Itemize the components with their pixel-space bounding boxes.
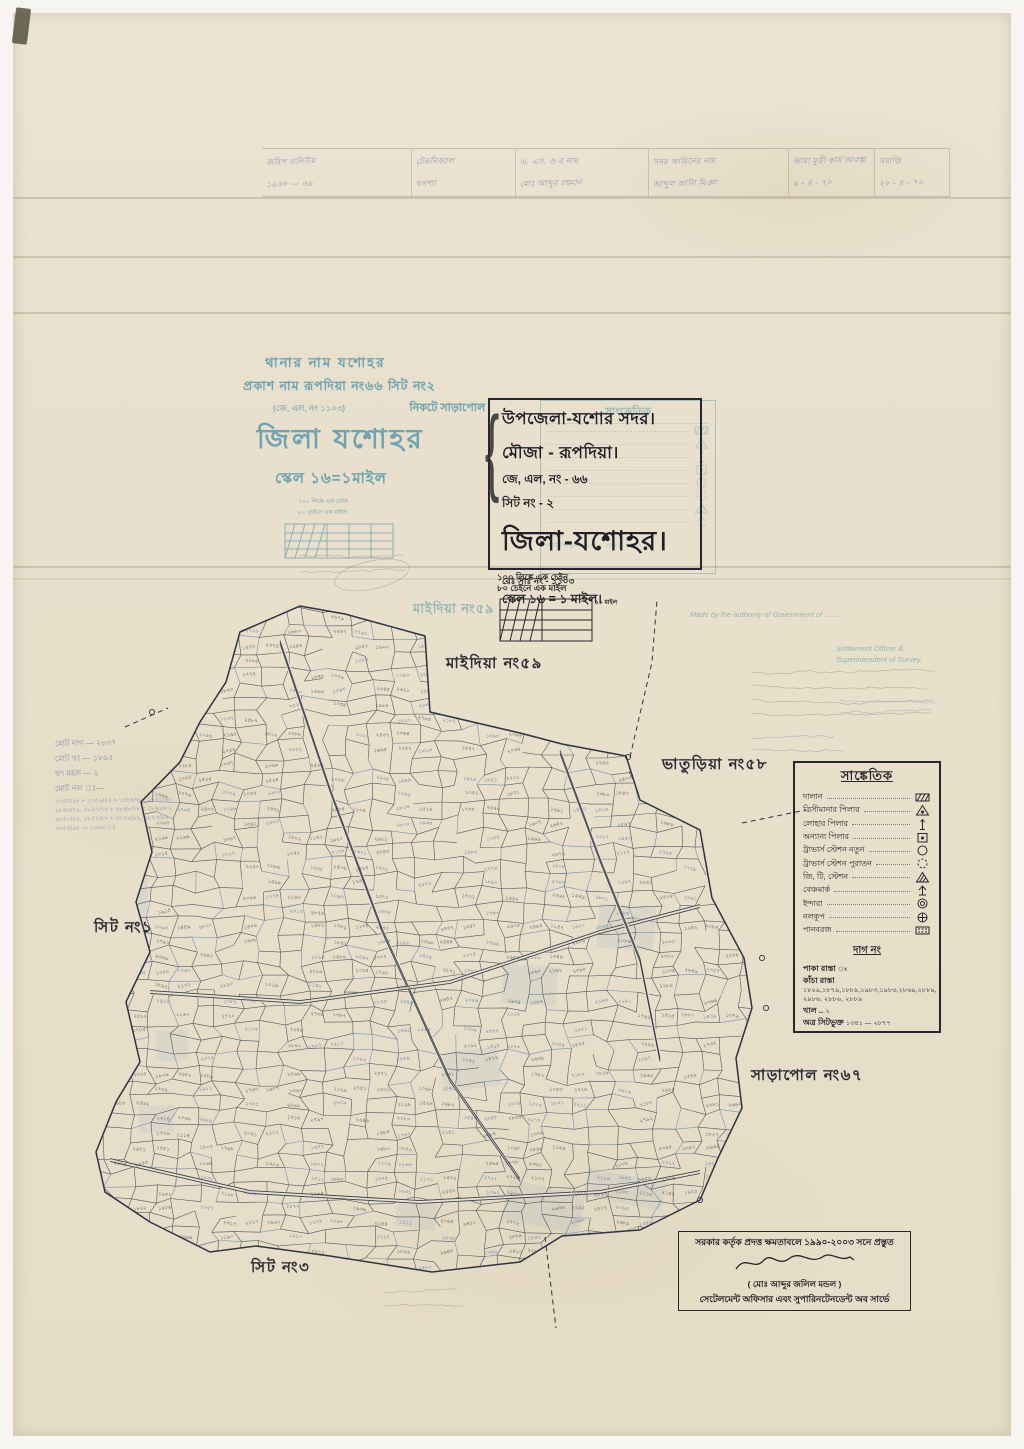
margin-note-line: মোট খং — ১৮৯৫ (55, 751, 185, 766)
legend-item-label: দালান (803, 791, 823, 804)
stamp-mouza-line: প্রকাশ নাম রূপদিয়া নং৬৬ সিট নং২ (243, 378, 543, 398)
header-table-col-0: জরিপ ভলিউম১৯৬৮ — ৬৯ (262, 149, 412, 196)
legend-item-label: লোহার পিলার (803, 818, 848, 831)
legend-dotted-leader (864, 810, 910, 812)
mouza-line: মৌজা - রূপদিয়া। (502, 440, 696, 467)
legend-item-triangle-dot: ত্রিসীমানার পিলার (803, 804, 931, 817)
header-table-entry: সমাপ্তি (879, 154, 945, 169)
legend-item-label: অন্যান্য পিলার (803, 831, 849, 844)
plot-row-1: কাঁচা রাস্তা ১৮০৯,১৮৭৯,১৮৮৯,১৯৮৩,১৯৮৬,২৮… (803, 976, 931, 1004)
legend-dotted-leader (827, 903, 910, 905)
settlement-officer-stamp: Settlement Officer & (836, 644, 903, 653)
legend-item-circle: ট্রাভার্স স্টেশন নতুন (803, 844, 931, 857)
legend-title: সাঙ্কেতিক (803, 767, 931, 788)
legend-item-label: পানবরজ (803, 924, 832, 937)
header-table-col-5: সমাপ্তি২৮ - ৪ - ৭০ (875, 149, 950, 196)
header-table-entry: সদর আমিনের নাম (653, 154, 785, 170)
legend-item-building: দালান (803, 791, 931, 804)
authority-line: সরকার কর্তৃক প্রদত্ত ক্ষমতাবলে ১৯৯০-২০০৩… (684, 1235, 905, 1250)
legend-dotted-leader (876, 863, 910, 865)
made-by-authority-stamp: Made by the authority of Government of .… (690, 610, 841, 619)
diagonal-scale-bar (497, 596, 597, 644)
margin-note-line: মোট নল ঃ— (55, 781, 185, 796)
header-table-col-3: সদর আমিনের নামআব্দুল আলি মিঞা (649, 149, 789, 196)
plot-row-value: ঃ (838, 966, 847, 973)
chain-note-1: ১০০ লিঙ্কে এক চেইন (497, 572, 597, 583)
legend-dotted-leader (852, 823, 910, 825)
plot-number-header: দাগ নং (803, 943, 931, 960)
stamp-chain-note-2: ৮০ চেইনে এক মাইল (298, 510, 347, 516)
plot-row-label: খাল .. (803, 1006, 825, 1015)
legend-item-label: ট্রাভার্স স্টেশন নতুন (803, 844, 865, 857)
legend-dotted-leader (836, 930, 910, 932)
plot-row-value: ২ (825, 1008, 829, 1015)
header-table-entry: ঘনশ্যা (416, 176, 512, 191)
title-brace: { (485, 408, 499, 494)
margin-note-line: হুদ মহল — ২ (55, 766, 185, 781)
legend-item-label: ট্রাভার্স স্টেশন পুরাতন (803, 858, 872, 871)
scale-bar-mile-label: ১০ মাইল (595, 597, 617, 608)
header-table-col-1: টেকনিক্যালঘনশ্যা (412, 149, 517, 196)
legend-dotted-leader (827, 797, 910, 799)
fold-line (13, 312, 1011, 314)
legend-item-square-dot: অন্যান্য পিলার (803, 831, 931, 844)
chain-scale-note: ১০০ লিঙ্কে এক চেইন ৮০ চেইনে এক মাইল (497, 572, 597, 649)
plot-row-label: অত্র সিটভুক্ত (803, 1018, 846, 1027)
officer-name: ( মোঃ আব্দুর জলিল মন্ডল ) (684, 1278, 905, 1292)
legend-item-label: বেঞ্চমার্ক (803, 884, 830, 897)
legend-item-label: ত্রিসীমানার পিলার (803, 804, 860, 817)
stamp-scale-bar (283, 520, 401, 562)
plot-row-label: পাকা রাস্তা (803, 964, 838, 973)
map-sheet-page (13, 13, 1011, 1436)
map-area-label: মাইদিয়া নং৫৯ (413, 600, 495, 621)
map-area-label: সিট নং৩ (251, 1256, 310, 1281)
fold-line (13, 197, 1011, 199)
legend-item-iron-pillar: লোহার পিলার (803, 818, 931, 831)
legend-item-double-circle: ইন্দারা (803, 897, 931, 910)
legend-item-benchmark: বেঞ্চমার্ক (803, 884, 931, 897)
scanned-map-sheet: ১১৭২২২২৬১২৪০১১২৮২৭৯২১৫৫৪১০৯৮২২৯৩১৮৮১১৫১০… (0, 0, 1024, 1449)
map-area-label: সাড়াপোল নং৬৭ (751, 1064, 863, 1089)
legend-item-hatched-triangle: জি, টি, স্টেশন (803, 871, 931, 884)
plot-row-value: ১৮০৯,১৮৭৯,১৮৮৯,১৯৮৩,১৯৮৬,২৮৬৯,২৮৮৯, ২৯৮৬… (803, 987, 937, 1003)
header-table-entry: মোঃ আব্দুর রহমান (520, 175, 644, 191)
sheet-no-line: সিট নং - ২ (502, 495, 696, 515)
header-table-entry: আমা মুড়ী কার্য আরম্ভ (793, 154, 870, 169)
map-area-label: সিট নং১ (94, 916, 153, 941)
plot-row-2: খাল .. ২ (803, 1006, 931, 1015)
header-table-entry: জরিপ ভলিউম (266, 153, 407, 170)
legend-item-circle-cross: নলকূপ (803, 911, 931, 924)
map-area-label: ভাতুড়িয়া নং৫৮ (662, 753, 768, 778)
legend-dotted-leader (829, 916, 910, 918)
header-table-col-2: এ. এস. ও-র নামমোঃ আব্দুর রহমান (516, 149, 649, 196)
legend-item-label: নলকূপ (803, 911, 825, 924)
stamp-chain-note-1: ১০০ লিঙ্কে এক চেইন (298, 499, 348, 505)
superintendent-stamp: Superintendent of Survey (836, 655, 921, 664)
legend-box: সাঙ্কেতিক দালানত্রিসীমানার পিলারলোহার পি… (793, 761, 941, 1033)
header-table-entry: এ. এস. ও-র নাম (520, 154, 644, 170)
fold-line (13, 256, 1011, 258)
margin-notes: মোট দাগ — ২৮৩৭মোট খং — ১৮৯৫হুদ মহল — ২মো… (55, 737, 185, 833)
jl-no-line: জে, এল, নং - ৬৬ (502, 471, 696, 491)
plot-rows: পাকা রাস্তা ঃকাঁচা রাস্তা ১৮০৯,১৮৭৯,১৮৮৯… (803, 964, 931, 1027)
header-table-entry: ১৯৬৮ — ৬৯ (266, 175, 407, 192)
map-title-block: { উপজেলা-যশোর সদর। মৌজা - রূপদিয়া। জে, … (488, 398, 702, 570)
legend-item-pan-borj: পানবরজ (803, 924, 931, 937)
officer-signature (730, 1250, 860, 1276)
legend-dotted-leader (852, 876, 910, 878)
legend-dotted-leader (853, 837, 910, 839)
legend-item-dashed-circle: ট্রাভার্স স্টেশন পুরাতন (803, 857, 931, 870)
header-table-entry: ২৮ - ৪ - ৭০ (879, 176, 945, 191)
district-title: জিলা-যশোহর। (502, 521, 696, 566)
stamp-near-label: নিকটে সাড়াপোল (410, 402, 486, 414)
pan-borj-icon (914, 922, 931, 940)
map-area-label: মাইদিয়া নং৫৯ (446, 652, 543, 677)
plot-row-value: ১৩৪১ — ২৮৭৭ (846, 1020, 891, 1027)
legend-rows: দালানত্রিসীমানার পিলারলোহার পিলারঅন্যান্… (803, 791, 931, 937)
legend-dotted-leader (834, 890, 910, 892)
header-table-entry: আব্দুল আলি মিঞা (653, 175, 785, 191)
officer-designation: সেটেলমেন্ট অফিসার এবং সুপারিনটেনডেন্ট অব… (684, 1292, 905, 1307)
plot-row-label: কাঁচা রাস্তা (803, 976, 835, 985)
plot-row-0: পাকা রাস্তা ঃ (803, 964, 931, 973)
upazila-line: উপজেলা-যশোর সদর। (502, 406, 696, 433)
header-table-entry: ৯ - ৪ - ৭০ (793, 176, 870, 191)
margin-note-fraction: ২৮৫৪/৯৮ — ১০৬৬ ঃ (55, 823, 185, 834)
plot-row-3: অত্র সিটভুক্ত ১৩৪১ — ২৮৭৭ (803, 1018, 931, 1027)
survey-header-table: জরিপ ভলিউম১৯৬৮ — ৬৯টেকনিক্যালঘনশ্যাএ. এস… (262, 148, 950, 197)
legend-item-label: জি, টি, স্টেশন (803, 871, 848, 884)
header-table-col-4: আমা মুড়ী কার্য আরম্ভ৯ - ৪ - ৭০ (789, 149, 875, 196)
margin-note-line: মোট দাগ — ২৮৩৭ (55, 736, 185, 751)
chain-note-2: ৮০ চেইনে এক মাইল (497, 583, 597, 594)
stamp-thana-line: থানার নাম যশোহর (243, 352, 543, 375)
signature-block: সরকার কর্তৃক প্রদত্ত ক্ষমতাবলে ১৯৯০-২০০৩… (678, 1231, 911, 1311)
legend-dotted-leader (869, 850, 910, 852)
bata-plots-label: বাটা দাগ ঃ (803, 1031, 931, 1033)
header-table-entry: টেকনিক্যাল (416, 154, 512, 169)
stamp-jl-no: (জে, এল, নং ১১০৩) (273, 403, 345, 413)
legend-item-label: ইন্দারা (803, 898, 823, 911)
